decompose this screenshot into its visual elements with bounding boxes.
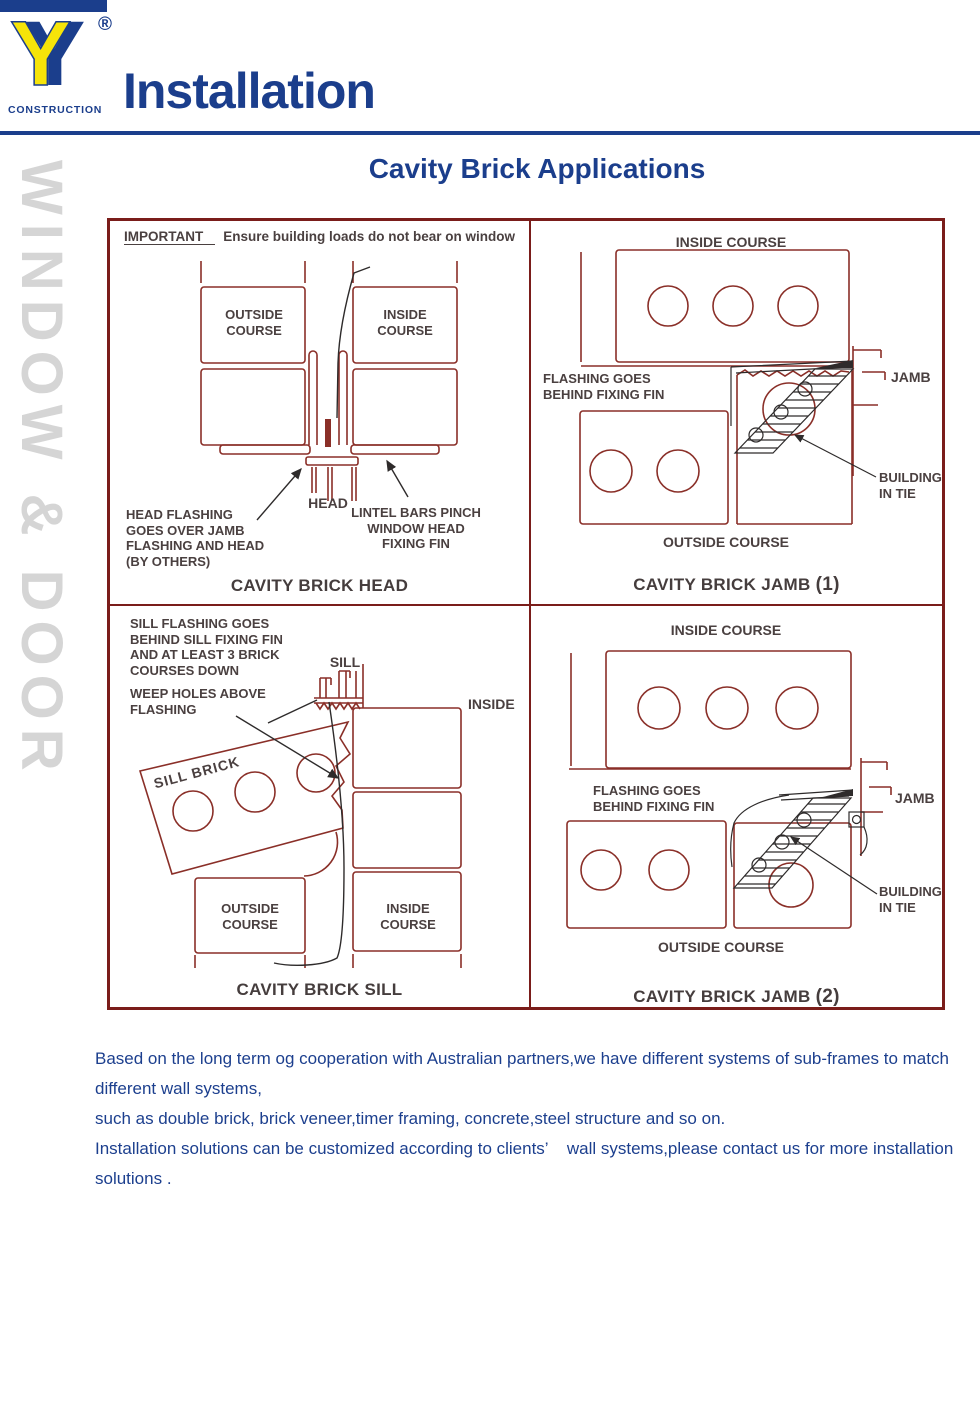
outside-course-label: OUTSIDE COURSE [611, 939, 831, 956]
panel-caption-sill: CAVITY BRICK SILL [110, 980, 529, 1000]
inside-course-label: INSIDE COURSE [360, 901, 456, 932]
building-in-tie-note: BUILDING IN TIE [879, 884, 949, 915]
caption-number: (1) [816, 574, 840, 595]
registered-trademark-icon: ® [98, 14, 112, 36]
outside-course-label: OUTSIDE COURSE [202, 901, 298, 932]
diagram-grid: IMPORTANTEnsure building loads do not be… [107, 218, 945, 1010]
panel-caption-jamb1: CAVITY BRICK JAMB (1) [531, 574, 942, 596]
footer-line: different wall systems, [95, 1074, 965, 1104]
outside-course-label: OUTSIDE COURSE [616, 534, 836, 551]
inside-course-label: INSIDE COURSE [626, 234, 836, 251]
sill-flashing-note: SILL FLASHING GOES BEHIND SILL FIXING FI… [130, 616, 310, 678]
footer-line: solutions . [95, 1164, 965, 1194]
panel-cavity-brick-sill: SILL FLASHING GOES BEHIND SILL FIXING FI… [110, 606, 531, 1007]
section-title: Cavity Brick Applications [107, 153, 967, 185]
lintel-bars-note: LINTEL BARS PINCH WINDOW HEAD FIXING FIN [340, 505, 492, 552]
inside-label: INSIDE [468, 696, 515, 713]
panel-cavity-brick-jamb-2: INSIDE COURSE FLASHING GOES BEHIND FIXIN… [531, 606, 942, 1007]
head-flashing-note: HEAD FLASHING GOES OVER JAMB FLASHING AN… [126, 507, 296, 569]
jamb-label: JAMB [895, 790, 935, 807]
logo-subtitle: CONSTRUCTION [8, 104, 102, 116]
footer-line: such as double brick, brick veneer,timer… [95, 1104, 965, 1134]
building-in-tie-note: BUILDING IN TIE [879, 470, 949, 501]
inside-course-label: INSIDE COURSE [621, 622, 831, 639]
flashing-note: FLASHING GOES BEHIND FIXING FIN [543, 371, 703, 402]
company-logo: Y Y ® CONSTRUCTION [8, 12, 128, 124]
footer-line: Installation solutions can be customized… [95, 1134, 965, 1164]
footer-paragraph: Based on the long term og cooperation wi… [95, 1044, 965, 1194]
important-text: Ensure building loads do not bear on win… [223, 229, 515, 244]
panel-caption-jamb2: CAVITY BRICK JAMB (2) [531, 986, 942, 1008]
document-page: Y Y ® CONSTRUCTION Installation WINDOW &… [0, 0, 980, 1405]
flashing-note: FLASHING GOES BEHIND FIXING FIN [593, 783, 753, 814]
window-door-watermark: WINDOW & DOOR [12, 160, 70, 780]
important-label: IMPORTANT [124, 229, 215, 245]
footer-line: Based on the long term og cooperation wi… [95, 1044, 965, 1074]
sill-label: SILL [315, 654, 375, 671]
header-divider [0, 131, 980, 135]
jamb-label: JAMB [891, 369, 931, 386]
panel-caption-head: CAVITY BRICK HEAD [110, 576, 529, 596]
page-title: Installation [123, 62, 375, 120]
panel-cavity-brick-jamb-1: INSIDE COURSE FLASHING GOES BEHIND FIXIN… [531, 221, 942, 606]
important-note: IMPORTANTEnsure building loads do not be… [124, 229, 515, 244]
panel-cavity-brick-head: IMPORTANTEnsure building loads do not be… [110, 221, 531, 606]
caption-number: (2) [816, 986, 840, 1007]
outside-course-label: OUTSIDE COURSE [205, 307, 303, 338]
inside-course-label: INSIDE COURSE [357, 307, 453, 338]
weep-holes-note: WEEP HOLES ABOVE FLASHING [130, 686, 290, 717]
